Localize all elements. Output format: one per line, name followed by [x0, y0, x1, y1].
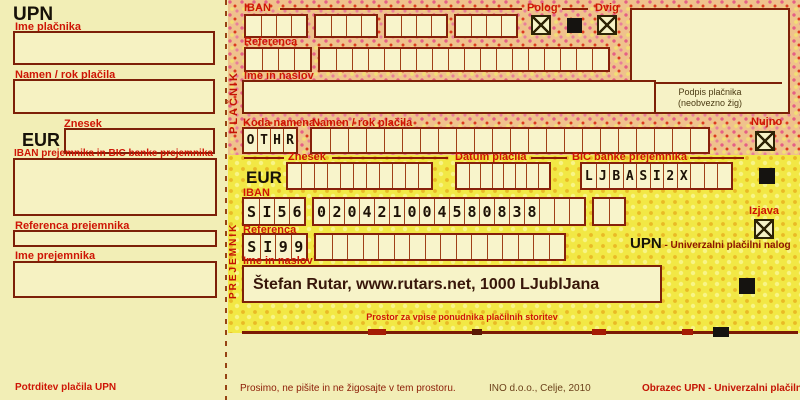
form-cell [384, 49, 400, 70]
form-cell [528, 129, 546, 152]
form-cell [402, 129, 420, 152]
cell-group [286, 162, 433, 190]
form-cell: T [257, 129, 270, 152]
form-cell [704, 164, 718, 188]
form-cell [366, 164, 379, 188]
form-cell: X [677, 164, 691, 188]
recipient-name-address-value: Štefan Rutar, www.rutars.net, 1000 LJubl… [244, 267, 660, 294]
form-cell [594, 199, 609, 224]
form-cell [246, 16, 261, 36]
form-cell: 0 [314, 199, 329, 224]
payment-date-cells[interactable] [455, 162, 551, 190]
registration-mark [567, 18, 582, 33]
form-cell [592, 49, 608, 70]
form-cell [560, 49, 576, 70]
cell-group [592, 197, 626, 226]
talon-recipient-reference-field[interactable] [13, 230, 217, 247]
form-cell [301, 164, 314, 188]
cell-group: SI56 [242, 197, 306, 226]
form-cell [352, 49, 368, 70]
form-cell [569, 199, 584, 224]
footer-publisher: INO d.o.o., Celje, 2010 [489, 384, 591, 394]
form-cell: 0 [404, 199, 419, 224]
form-cell [418, 164, 431, 188]
registration-mark [739, 278, 755, 294]
payer-name-address-field[interactable] [242, 80, 656, 114]
form-cell [456, 16, 471, 36]
form-cell: I [259, 199, 274, 224]
divider-line [280, 8, 522, 10]
divider-line [332, 157, 448, 159]
upn-payment-order-form: UPN Ime plačnika Namen / rok plačila Zne… [0, 0, 800, 400]
form-cell [546, 129, 564, 152]
form-cell [366, 129, 384, 152]
form-cell [554, 199, 569, 224]
form-cell [487, 235, 503, 259]
form-cell [518, 235, 534, 259]
form-cell [474, 129, 492, 152]
form-cell: J [596, 164, 610, 188]
form-cell [471, 235, 487, 259]
registration-mark [368, 329, 386, 335]
form-cell [262, 49, 278, 70]
form-cell: 2 [329, 199, 344, 224]
amount-cells[interactable] [286, 162, 433, 190]
divider-line [531, 157, 567, 159]
form-cell [416, 16, 431, 36]
form-cell [340, 164, 353, 188]
form-cell [261, 16, 276, 36]
form-cell: O [244, 129, 257, 152]
form-cell [510, 129, 528, 152]
recipient-bic-cells[interactable]: LJBASI2X [580, 162, 733, 190]
form-cell: R [283, 129, 296, 152]
form-cell [457, 164, 469, 188]
form-cell: L [582, 164, 596, 188]
form-cell [471, 16, 486, 36]
form-cell [438, 129, 456, 152]
form-cell [717, 164, 731, 188]
form-cell [291, 16, 306, 36]
form-cell [246, 49, 262, 70]
form-cell [331, 16, 346, 36]
form-cell [316, 235, 332, 259]
form-cell [544, 49, 560, 70]
form-cell [448, 49, 464, 70]
talon-payer-name-field[interactable] [13, 31, 215, 65]
form-cell [512, 49, 528, 70]
recipient-section-vertical-label: PREJEMNIK [228, 216, 239, 306]
form-cell [400, 49, 416, 70]
form-cell: 0 [419, 199, 434, 224]
talon-purpose-field[interactable] [13, 79, 215, 114]
form-cell [636, 129, 654, 152]
form-cell [347, 235, 363, 259]
divider-line [562, 8, 588, 10]
cell-group [455, 162, 551, 190]
form-cell: 1 [389, 199, 404, 224]
cell-group [244, 47, 312, 72]
form-cell [378, 235, 394, 259]
deposit-checkbox[interactable] [531, 15, 551, 35]
cell-group [244, 14, 308, 38]
form-cell [336, 49, 352, 70]
form-cell: H [270, 129, 283, 152]
cell-group: OTHR [242, 127, 298, 154]
form-cell: 5 [449, 199, 464, 224]
footer-note: Prosimo, ne pišite in ne žigosajte v tem… [240, 384, 456, 394]
form-cell: 8 [464, 199, 479, 224]
form-cell: S [244, 199, 259, 224]
form-cell [492, 129, 510, 152]
registration-mark [682, 329, 693, 335]
form-cell [432, 49, 448, 70]
form-cell [690, 164, 704, 188]
form-cell [456, 129, 474, 152]
form-cell [431, 16, 446, 36]
form-cell [384, 129, 402, 152]
declaration-label: Izjava [749, 206, 779, 217]
form-cell [538, 164, 550, 188]
form-cell [314, 164, 327, 188]
urgent-checkbox[interactable] [755, 131, 775, 151]
form-cell [618, 129, 636, 152]
form-cell [312, 129, 330, 152]
form-cell [416, 49, 432, 70]
form-cell [332, 235, 348, 259]
divider-line [244, 157, 284, 159]
form-cell: S [636, 164, 650, 188]
form-cell [320, 49, 336, 70]
form-cell [425, 235, 441, 259]
form-cell: B [609, 164, 623, 188]
form-title-subtitle: - Univerzalni plačilni nalog [662, 240, 791, 251]
form-cell [503, 164, 515, 188]
payer-section-vertical-label: PLAČNIK [228, 45, 240, 160]
form-cell: I [650, 164, 664, 188]
form-cell [316, 16, 331, 36]
form-cell [576, 49, 592, 70]
registration-mark [592, 329, 606, 335]
provider-space-label: Prostor za vpise ponudnika plačilnih sto… [242, 313, 682, 322]
form-cell [672, 129, 690, 152]
payer-iban-label: IBAN [244, 3, 271, 14]
form-cell [528, 49, 544, 70]
form-cell [379, 164, 392, 188]
form-cell [464, 49, 480, 70]
cell-group [314, 233, 566, 261]
form-cell [394, 235, 410, 259]
urgent-label: Nujno [751, 117, 782, 128]
talon-recipient-name-field[interactable] [13, 261, 217, 298]
perforation-line [225, 0, 227, 400]
form-cell [409, 235, 425, 259]
form-cell [486, 16, 501, 36]
form-cell [533, 235, 549, 259]
form-cell: 5 [274, 199, 289, 224]
cell-group [384, 14, 448, 38]
payer-iban-cells[interactable] [244, 14, 518, 38]
form-cell [330, 129, 348, 152]
form-cell [582, 129, 600, 152]
purpose-cells[interactable] [310, 127, 710, 154]
form-cell [526, 164, 538, 188]
form-cell [353, 164, 366, 188]
withdrawal-checkbox[interactable] [597, 15, 617, 35]
form-cell [456, 235, 472, 259]
form-title-upn: UPN [630, 235, 662, 252]
form-cell: 8 [494, 199, 509, 224]
payer-reference-cells[interactable] [244, 47, 610, 72]
cell-group: LJBASI2X [580, 162, 733, 190]
signature-caption-2: (neobvezno žig) [678, 98, 742, 108]
form-cell [609, 199, 624, 224]
divider-line [690, 157, 744, 159]
cell-group [314, 14, 378, 38]
recipient-name-address-field[interactable]: Štefan Rutar, www.rutars.net, 1000 LJubl… [242, 265, 662, 303]
form-cell [348, 129, 366, 152]
signature-line [638, 82, 782, 84]
purpose-code-cells[interactable]: OTHR [242, 127, 298, 154]
form-cell: 0 [344, 199, 359, 224]
talon-recipient-iban-bic-field[interactable] [13, 158, 217, 216]
form-cell [654, 129, 672, 152]
form-cell [502, 235, 518, 259]
form-cell [392, 164, 405, 188]
form-cell [469, 164, 481, 188]
deposit-label: Polog [527, 3, 558, 14]
form-cell [600, 129, 618, 152]
cell-group [310, 127, 710, 154]
footer-form-name: Obrazec UPN - Univerzalni plačilni nalog [642, 384, 800, 394]
form-cell [361, 16, 376, 36]
form-cell [440, 235, 456, 259]
form-cell: 4 [434, 199, 449, 224]
form-cell: 0 [479, 199, 494, 224]
form-cell [288, 164, 301, 188]
form-title: UPN - Univerzalni plačilni nalog [630, 235, 791, 253]
form-cell [564, 129, 582, 152]
form-cell [405, 164, 418, 188]
form-cell [480, 49, 496, 70]
talon-stub: UPN Ime plačnika Namen / rok plačila Zne… [0, 0, 226, 400]
form-cell: 2 [663, 164, 677, 188]
form-cell [549, 235, 565, 259]
form-cell: 4 [359, 199, 374, 224]
form-cell [278, 49, 294, 70]
form-cell [401, 16, 416, 36]
form-cell [690, 129, 708, 152]
form-cell: 6 [289, 199, 304, 224]
talon-confirmation-label: Potrditev plačila UPN [15, 383, 116, 393]
form-cell: 2 [374, 199, 389, 224]
registration-mark [713, 327, 729, 337]
registration-mark [472, 329, 482, 335]
form-cell [492, 164, 504, 188]
form-cell [327, 164, 340, 188]
form-cell [420, 129, 438, 152]
cell-group: 020421004580838 [312, 197, 586, 226]
form-cell [346, 16, 361, 36]
talon-currency-label: EUR [22, 131, 60, 149]
currency-label: EUR [246, 169, 282, 186]
form-cell: 3 [509, 199, 524, 224]
form-cell [294, 49, 310, 70]
form-cell: A [623, 164, 637, 188]
form-cell [368, 49, 384, 70]
form-cell [276, 16, 291, 36]
withdrawal-label: Dvig [595, 3, 619, 14]
form-cell [386, 16, 401, 36]
form-cell [501, 16, 516, 36]
form-cell [480, 164, 492, 188]
form-cell [515, 164, 527, 188]
form-cell [363, 235, 379, 259]
form-cell [539, 199, 554, 224]
signature-caption-1: Podpis plačnika [678, 87, 741, 97]
registration-mark [759, 168, 775, 184]
recipient-iban-cells[interactable]: SI56020421004580838 [242, 197, 626, 226]
form-cell: 8 [524, 199, 539, 224]
cell-group [454, 14, 518, 38]
form-cell [496, 49, 512, 70]
cell-group [318, 47, 610, 72]
